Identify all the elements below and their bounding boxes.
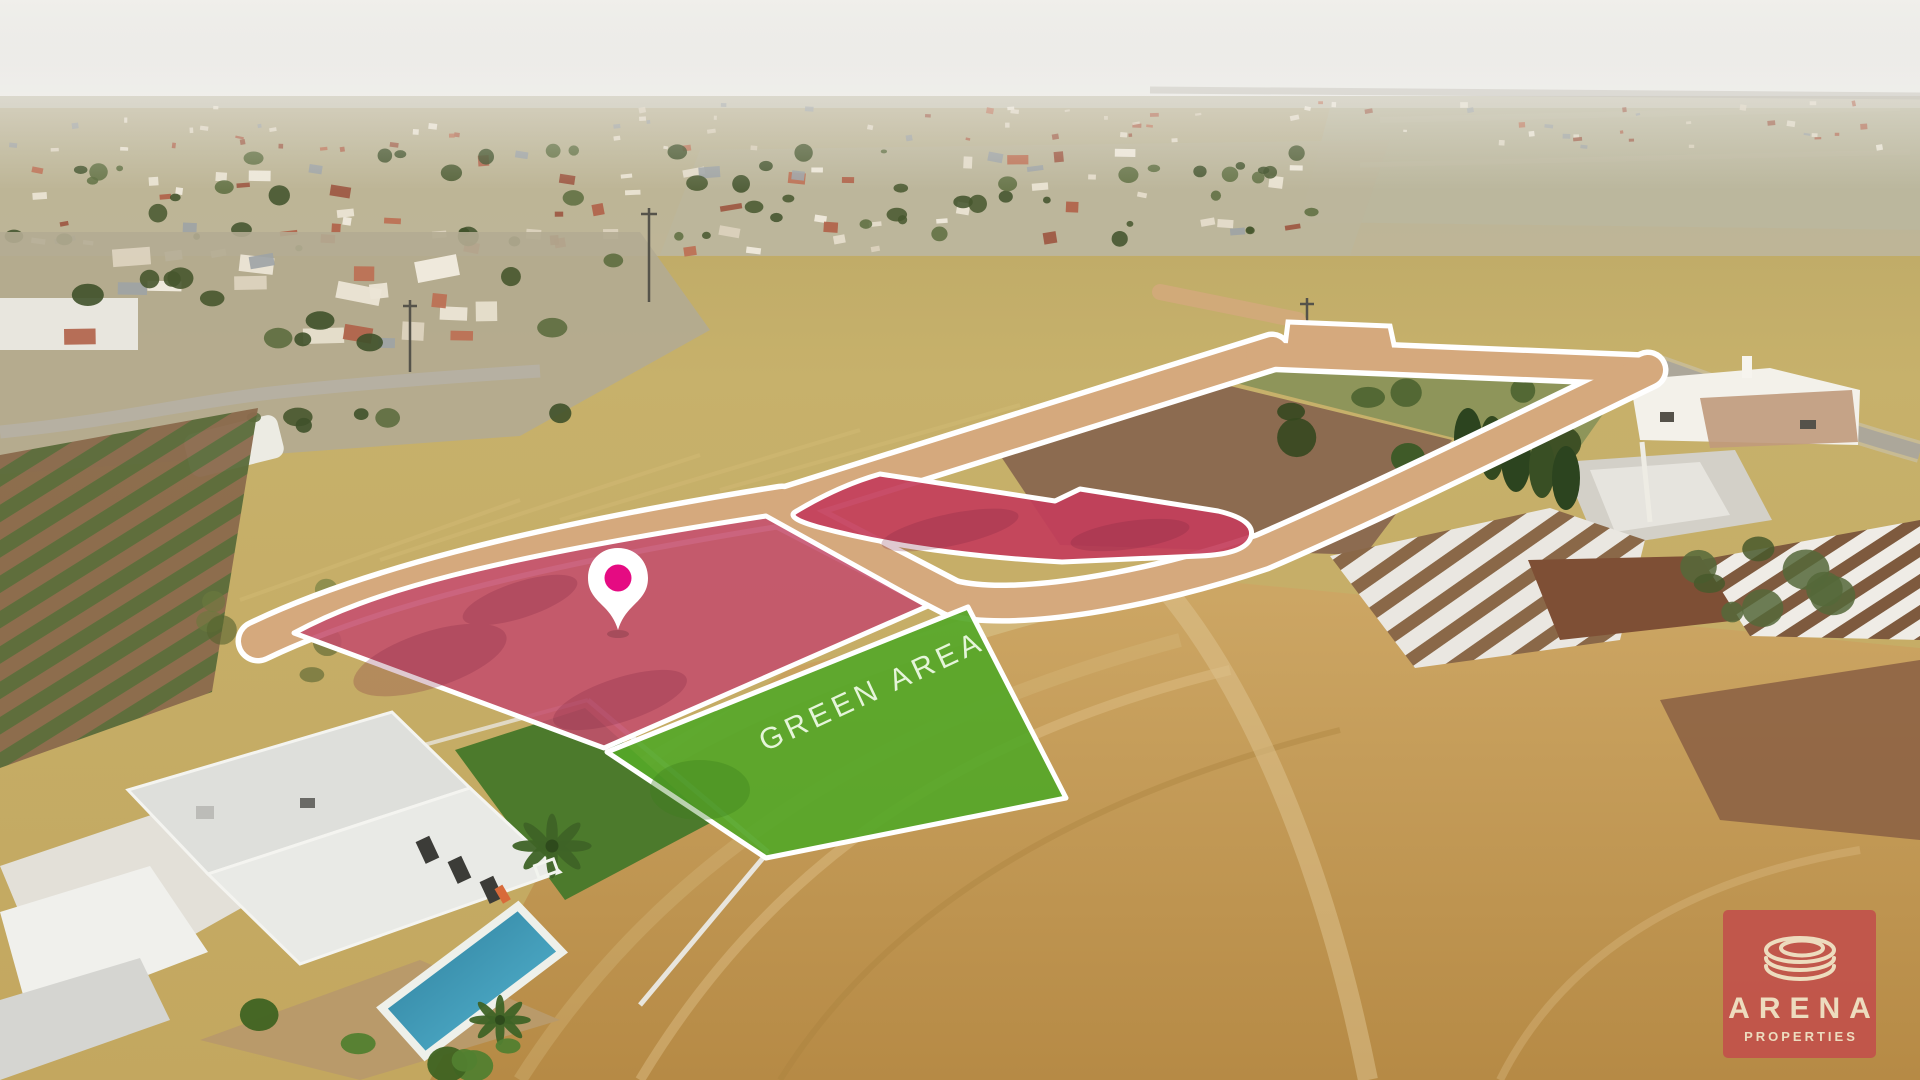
arena-properties-logo: ARENA PROPERTIES — [1723, 910, 1876, 1058]
aerial-scene: GREEN AREA — [0, 0, 1920, 1080]
aerial-property-photo: GREEN AREA ARENA PROPERTIES — [0, 0, 1920, 1080]
logo-tagline-text: PROPERTIES — [1741, 1030, 1858, 1043]
logo-brand-text: ARENA — [1719, 994, 1880, 1024]
arena-swirl-icon — [1745, 926, 1855, 990]
haze — [0, 0, 1920, 190]
pin-dot — [605, 565, 632, 592]
